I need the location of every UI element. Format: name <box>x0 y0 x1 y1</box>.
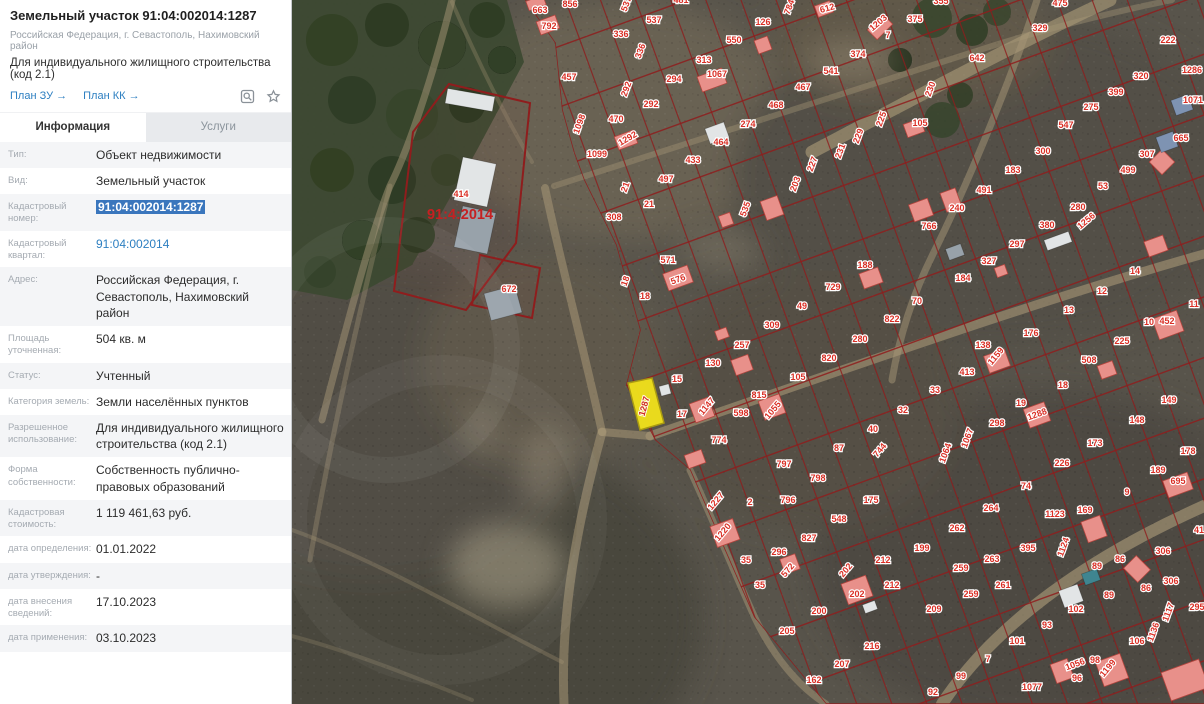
parcel-number[interactable]: 7 <box>885 30 890 40</box>
parcel-number[interactable]: 212 <box>884 580 899 590</box>
field-row: Разрешенное использование:Для индивидуал… <box>0 415 291 457</box>
field-label: Площадь уточненная: <box>0 331 96 358</box>
plan-links-row: План ЗУ → План КК → <box>10 89 281 112</box>
parcel-number[interactable]: 105 <box>912 118 927 128</box>
parcel-number[interactable]: 102 <box>1068 604 1083 614</box>
field-value: Земельный участок <box>96 173 291 189</box>
parcel-number[interactable]: 70 <box>912 296 922 306</box>
field-label: Кадастровый номер: <box>0 199 96 226</box>
parcel-number[interactable]: 355 <box>933 0 948 6</box>
parcel-number[interactable]: 497 <box>658 174 673 184</box>
star-icon[interactable] <box>266 89 281 104</box>
parcel-number[interactable]: 481 <box>673 0 688 5</box>
address-subtitle: Российская Федерация, г. Севастополь, На… <box>10 30 281 52</box>
parcel-number[interactable]: 374 <box>850 49 865 59</box>
parcel-number[interactable]: 262 <box>949 523 964 533</box>
parcel-number[interactable]: 138 <box>975 340 990 350</box>
parcel-number[interactable]: 222 <box>1160 35 1175 45</box>
field-value: Российская Федерация, г. Севастополь, На… <box>96 272 291 321</box>
parcel-number[interactable]: 209 <box>926 604 941 614</box>
parcel-number[interactable]: 14 <box>1130 266 1140 276</box>
parcel-number[interactable]: 292 <box>643 99 658 109</box>
field-row: Кадастровый номер:91:04:002014:1287 <box>0 194 291 231</box>
permitted-use-line: Для индивидуального жилищного строительс… <box>10 57 281 81</box>
parcel-number[interactable]: 212 <box>875 555 890 565</box>
field-row: дата применения:03.10.2023 <box>0 625 291 651</box>
parcel-number[interactable]: 327 <box>981 256 996 266</box>
parcel-number[interactable]: 547 <box>1058 120 1073 130</box>
field-value: Учтенный <box>96 368 291 384</box>
parcel-number[interactable]: 541 <box>823 66 838 76</box>
parcel-number[interactable]: 470 <box>608 114 623 124</box>
parcel-number[interactable]: 395 <box>1020 543 1035 553</box>
parcel-number[interactable]: 175 <box>863 495 878 505</box>
field-row: Кадастровый квартал:91:04:002014 <box>0 231 291 268</box>
parcel-number[interactable]: 467 <box>795 82 810 92</box>
parcel-number[interactable]: 1067 <box>707 69 727 79</box>
field-row: дата внесения сведений:17.10.2023 <box>0 589 291 626</box>
parcel-number[interactable]: 92 <box>928 687 938 697</box>
field-value: 504 кв. м <box>96 331 291 347</box>
parcel-number[interactable]: 207 <box>834 659 849 669</box>
parcel-number[interactable]: 199 <box>914 543 929 553</box>
parcel-number[interactable]: 508 <box>1081 355 1096 365</box>
parcel-number[interactable]: 297 <box>1009 239 1024 249</box>
parcel-number[interactable]: 17 <box>677 409 687 419</box>
parcel-number[interactable]: 263 <box>984 554 999 564</box>
quarter-number-label: 91:4:2014 <box>427 207 493 223</box>
parcel-number[interactable]: 169 <box>1077 505 1092 515</box>
parcel-number[interactable]: 40 <box>868 424 878 434</box>
parcel-number[interactable]: 87 <box>834 443 844 453</box>
parcel-number[interactable]: 695 <box>1170 476 1185 486</box>
parcel-number[interactable]: 336 <box>613 29 628 39</box>
parcel-number[interactable]: 74 <box>1021 481 1031 491</box>
parcel-number[interactable]: 86 <box>1115 554 1125 564</box>
parcel-number[interactable]: 729 <box>825 282 840 292</box>
parcel-number[interactable]: 550 <box>726 35 741 45</box>
parcel-number[interactable]: 414 <box>453 189 468 199</box>
parcel-number[interactable]: 202 <box>849 589 864 599</box>
parcel-number[interactable]: 1123 <box>1045 509 1065 519</box>
field-row: дата утверждения:- <box>0 563 291 589</box>
field-value: Земли населённых пунктов <box>96 394 291 410</box>
field-label: Тип: <box>0 147 96 161</box>
parcel-number[interactable]: 32 <box>898 405 908 415</box>
parcel-number[interactable]: 491 <box>976 185 991 195</box>
plan-kk-link[interactable]: План КК → <box>83 90 139 102</box>
cadastral-map[interactable]: 1287 85666379245710981099414672537481537… <box>292 0 1204 704</box>
parcel-number[interactable]: 309 <box>764 320 779 330</box>
parcel-number[interactable]: 766 <box>921 221 936 231</box>
parcel-number[interactable]: 399 <box>1108 87 1123 97</box>
parcel-number[interactable]: 86 <box>1141 583 1151 593</box>
parcel-number[interactable]: 797 <box>776 459 791 469</box>
parcel-number[interactable]: 7 <box>985 654 990 664</box>
field-label: дата утверждения: <box>0 568 96 582</box>
parcel-number[interactable]: 264 <box>983 503 998 513</box>
field-label: дата применения: <box>0 630 96 644</box>
panel-tabs: ИнформацияУслуги <box>0 112 291 142</box>
parcel-number[interactable]: 792 <box>541 21 556 31</box>
parcel-number[interactable]: 21 <box>644 199 654 209</box>
parcel-number[interactable]: 295 <box>1189 602 1204 612</box>
plan-zu-link[interactable]: План ЗУ → <box>10 90 67 102</box>
parcel-number[interactable]: 815 <box>751 390 766 400</box>
parcel-number[interactable]: 184 <box>955 273 970 283</box>
parcel-number[interactable]: 13 <box>1064 305 1074 315</box>
parcel-number[interactable]: 413 <box>959 367 974 377</box>
parcel-number[interactable]: 9 <box>1124 487 1129 497</box>
parcel-number[interactable]: 433 <box>685 155 700 165</box>
parcel-number[interactable]: 15 <box>672 374 682 384</box>
parcel-number[interactable]: 259 <box>953 563 968 573</box>
parcel-number[interactable]: 176 <box>1023 328 1038 338</box>
parcel-number[interactable]: 380 <box>1039 220 1054 230</box>
parcel-number[interactable]: 548 <box>831 514 846 524</box>
parcel-number[interactable]: 240 <box>949 203 964 213</box>
field-label: Категория земель: <box>0 394 96 408</box>
parcel-number[interactable]: 188 <box>857 260 872 270</box>
field-row: Статус:Учтенный <box>0 363 291 389</box>
parcel-number[interactable]: 329 <box>1032 23 1047 33</box>
parcel-number[interactable]: 35 <box>741 555 751 565</box>
info-panel: Земельный участок 91:04:002014:1287 Росс… <box>0 0 292 704</box>
parcel-number[interactable]: 33 <box>930 385 940 395</box>
panel-header: Земельный участок 91:04:002014:1287 Росс… <box>0 0 291 112</box>
field-value: 03.10.2023 <box>96 630 291 646</box>
parcel-number[interactable]: 261 <box>995 580 1010 590</box>
parcel-number[interactable]: 537 <box>646 15 661 25</box>
parcel-number[interactable]: 130 <box>705 358 720 368</box>
parcel-number[interactable]: 93 <box>1042 620 1052 630</box>
parcel-number[interactable]: 216 <box>864 641 879 651</box>
parcel-number[interactable]: 162 <box>806 675 821 685</box>
field-value: 17.10.2023 <box>96 594 291 610</box>
field-value: Собственность публично-правовых образова… <box>96 462 291 494</box>
parcel-number[interactable]: 19 <box>1016 398 1026 408</box>
parcel-number[interactable]: 89 <box>1092 561 1102 571</box>
parcel-number[interactable]: 98 <box>1090 655 1100 665</box>
field-value[interactable]: 91:04:002014 <box>96 236 291 252</box>
parcel-number[interactable]: 306 <box>1163 576 1178 586</box>
parcel-number[interactable]: 18 <box>640 291 650 301</box>
parcel-number[interactable]: 189 <box>1150 465 1165 475</box>
attribute-list: Тип:Объект недвижимостиВид:Земельный уча… <box>0 142 291 704</box>
field-label: Вид: <box>0 173 96 187</box>
field-row: Адрес:Российская Федерация, г. Севастопо… <box>0 267 291 326</box>
tab-information[interactable]: Информация <box>0 113 146 142</box>
parcel-number[interactable]: 96 <box>1072 673 1082 683</box>
field-label: дата определения: <box>0 541 96 555</box>
field-row: Категория земель:Земли населённых пункто… <box>0 389 291 415</box>
parcel-number[interactable]: 665 <box>1173 133 1188 143</box>
parcel-number[interactable]: 275 <box>1083 102 1098 112</box>
parcel-number[interactable]: 41 <box>1194 525 1204 535</box>
field-value: - <box>96 568 291 584</box>
parcel-number[interactable]: 126 <box>755 17 770 27</box>
parcel-number[interactable]: 200 <box>811 606 826 616</box>
parcel-number[interactable]: 178 <box>1180 446 1195 456</box>
parcel-number[interactable]: 298 <box>989 418 1004 428</box>
parcel-number[interactable]: 35 <box>755 580 765 590</box>
parcel-number[interactable]: 1286 <box>1182 65 1202 75</box>
parcel-number[interactable]: 300 <box>1035 146 1050 156</box>
parcel-number[interactable]: 259 <box>963 589 978 599</box>
parcel-number[interactable]: 642 <box>969 53 984 63</box>
field-label: Форма собственности: <box>0 462 96 489</box>
parcel-number[interactable]: 1077 <box>1022 682 1042 692</box>
parcel-number[interactable]: 452 <box>1159 316 1174 326</box>
parcel-number[interactable]: 280 <box>852 334 867 344</box>
field-value: Объект недвижимости <box>96 147 291 163</box>
parcel-number[interactable]: 468 <box>768 100 783 110</box>
parcel-number[interactable]: 464 <box>713 137 728 147</box>
parcel-number[interactable]: 257 <box>734 340 749 350</box>
dirt-road <box>602 432 650 436</box>
parcel-number[interactable]: 796 <box>780 495 795 505</box>
parcel-number[interactable]: 101 <box>1009 636 1024 646</box>
field-label: Адрес: <box>0 272 96 286</box>
parcel-number[interactable]: 308 <box>606 212 621 222</box>
parcel-number[interactable]: 11 <box>1189 299 1199 309</box>
field-value: Для индивидуального жилищного строительс… <box>96 420 291 452</box>
field-row: Тип:Объект недвижимости <box>0 142 291 168</box>
parcel-number[interactable]: 320 <box>1133 71 1148 81</box>
building <box>659 384 671 396</box>
parcel-number[interactable]: 571 <box>660 255 675 265</box>
parcel-number[interactable]: 274 <box>740 119 755 129</box>
parcel-number[interactable]: 1071 <box>1183 95 1203 105</box>
parcel-number[interactable]: 99 <box>956 671 966 681</box>
parcel-number[interactable]: 499 <box>1120 165 1135 175</box>
field-label: Статус: <box>0 368 96 382</box>
page-title: Земельный участок 91:04:002014:1287 <box>10 8 281 24</box>
parcel-number[interactable]: 10 <box>1144 317 1154 327</box>
field-label: Разрешенное использование: <box>0 420 96 447</box>
parcel-number[interactable]: 205 <box>779 626 794 636</box>
parcel-number[interactable]: 774 <box>711 435 726 445</box>
parcel-number[interactable]: 798 <box>810 473 825 483</box>
parcel-number[interactable]: 820 <box>821 353 836 363</box>
preview-icon[interactable] <box>240 89 255 104</box>
parcel-number[interactable]: 475 <box>1052 0 1067 8</box>
field-label: Кадастровая стоимость: <box>0 505 96 532</box>
tab-services[interactable]: Услуги <box>146 113 292 142</box>
parcel-number[interactable]: 225 <box>1114 336 1129 346</box>
field-row: дата определения:01.01.2022 <box>0 536 291 562</box>
parcel-number[interactable]: 12 <box>1097 286 1107 296</box>
parcel-number[interactable]: 1099 <box>587 149 607 159</box>
parcel-number[interactable]: 598 <box>733 408 748 418</box>
parcel-number[interactable]: 822 <box>884 314 899 324</box>
parcel-number[interactable]: 183 <box>1005 165 1020 175</box>
parcel-number[interactable]: 307 <box>1139 149 1154 159</box>
parcel-number[interactable]: 375 <box>907 14 922 24</box>
field-value: 1 119 461,63 руб. <box>96 505 291 521</box>
parcel-number[interactable]: 280 <box>1070 202 1085 212</box>
parcel-number[interactable]: 105 <box>790 372 805 382</box>
field-row: Вид:Земельный участок <box>0 168 291 194</box>
parcel-number[interactable]: 294 <box>666 74 681 84</box>
field-row: Площадь уточненная:504 кв. м <box>0 326 291 363</box>
field-label: Кадастровый квартал: <box>0 236 96 263</box>
parcel-number[interactable]: 53 <box>1098 181 1108 191</box>
parcel-number[interactable]: 856 <box>562 0 577 9</box>
field-row: Кадастровая стоимость:1 119 461,63 руб. <box>0 500 291 537</box>
parcel-number[interactable]: 148 <box>1129 415 1144 425</box>
parcel-number[interactable]: 827 <box>801 533 816 543</box>
parcel-number[interactable]: 663 <box>532 5 547 15</box>
parcel-number[interactable]: 106 <box>1129 636 1144 646</box>
parcel-number[interactable]: 457 <box>561 72 576 82</box>
parcel-number[interactable]: 149 <box>1161 395 1176 405</box>
field-label: дата внесения сведений: <box>0 594 96 621</box>
field-value: 01.01.2022 <box>96 541 291 557</box>
parcel-number[interactable]: 296 <box>771 547 786 557</box>
field-row: Форма собственности:Собственность публич… <box>0 457 291 499</box>
parcel-number[interactable]: 49 <box>797 301 807 311</box>
parcel-number[interactable]: 2 <box>747 497 752 507</box>
parcel-number[interactable]: 226 <box>1054 458 1069 468</box>
field-value: 91:04:002014:1287 <box>96 199 291 215</box>
parcel-number[interactable]: 306 <box>1155 546 1170 556</box>
parcel-number[interactable]: 18 <box>1058 380 1068 390</box>
map-canvas[interactable]: 1287 85666379245710981099414672537481537… <box>292 0 1204 704</box>
parcel-number[interactable]: 89 <box>1104 590 1114 600</box>
parcel-number[interactable]: 173 <box>1087 438 1102 448</box>
parcel-number[interactable]: 313 <box>696 55 711 65</box>
